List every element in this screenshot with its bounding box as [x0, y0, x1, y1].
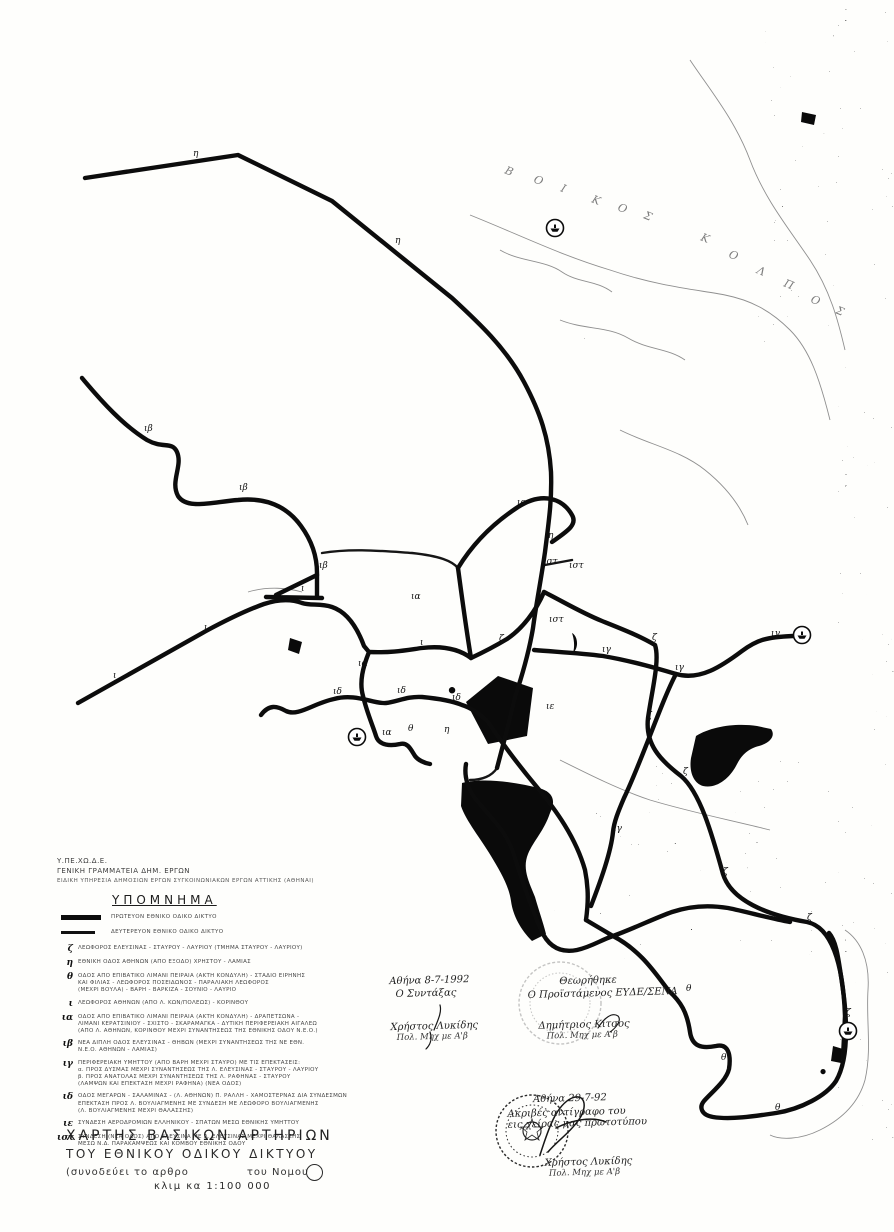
route-letter-label: η: [193, 149, 199, 159]
legend-entry-key: θ: [57, 972, 78, 995]
route-letter-label: ζ: [652, 633, 658, 643]
ship-port-icon: [794, 627, 811, 644]
compile-date: Αθήνα 8-7-1992: [389, 974, 477, 987]
route-letter-label: ιδ: [397, 686, 406, 696]
route-letter-label: ι: [301, 584, 305, 594]
route-letter-label: ια: [517, 498, 527, 508]
map-title-line2: ΤΟΥ ΕΘΝΙΚΟΥ ΟΔΙΚΟΥ ΔΙΚΤΥΟΥ: [66, 1147, 333, 1161]
route-letter-label: ιβ: [239, 483, 248, 493]
scanned-map-page: { "agency": { "line1": "Υ.ΠΕ.ΧΩ.Δ.Ε.", "…: [0, 0, 894, 1232]
coastline-path: [248, 588, 302, 592]
ship-funnel: [554, 225, 556, 229]
legend-entry: ιγΠΕΡΙΦΕΡΕΙΑΚΗ ΥΜΗΤΤΟΥ (ΑΠΟ ΒΑΡΗ ΜΕΧΡΙ Σ…: [57, 1059, 367, 1089]
legend-entry: ζΛΕΩΦΟΡΟΣ ΕΛΕΥΣΙΝΑΣ - ΣΤΑΥΡΟΥ - ΛΑΥΡΙΟΥ …: [57, 944, 367, 954]
legend-entry-text: ΕΘΝΙΚΗ ΟΔΟΣ ΑΘΗΝΩΝ (ΑΠΟ ΕΞΟΔΟ) ΧΡΗΣΤΟΥ -…: [78, 958, 251, 968]
agency-header: Υ.ΠΕ.ΧΩ.Δ.Ε. ΓΕΝΙΚΗ ΓΡΑΜΜΑΤΕΙΑ ΔΗΜ. ΕΡΓΩ…: [57, 856, 314, 886]
ship-funnel: [356, 734, 358, 738]
secondary-road-path: [322, 550, 458, 568]
compiler-title: Πολ. Μηχ με Α'β: [397, 1031, 479, 1043]
legend-entry-key: ιγ: [57, 1059, 78, 1089]
ship-port-icon: [840, 1023, 857, 1040]
legend-entry-text: ΟΔΟΣ ΑΠΟ ΕΠΙΒΑΤΙΚΟ ΛΙΜΑΝΙ ΠΕΙΡΑΙΑ (ΑΚΤΗ …: [78, 1013, 318, 1036]
route-letter-label: θ: [775, 1103, 781, 1113]
legend-entry-key: ιδ: [57, 1092, 78, 1115]
route-letter-label: θ: [686, 984, 692, 994]
route-letter-label: ιγ: [675, 663, 685, 673]
legend-title: ΥΠΟΜΝΗΜΑ: [112, 893, 367, 907]
legend-primary-label: ΠΡΩΤΕΥΟΝ ΕΘΝΙΚΟ ΟΔΙΚΟ ΔΙΚΤΥΟ: [111, 914, 217, 920]
legend-entry-text: ΛΕΩΦΟΡΟΣ ΕΛΕΥΣΙΝΑΣ - ΣΤΑΥΡΟΥ - ΛΑΥΡΙΟΥ (…: [78, 944, 303, 954]
primary-road-path: [266, 575, 322, 598]
approved-label: Θεωρήθηκε: [559, 973, 677, 987]
route-letter-label: ιστ: [569, 561, 585, 571]
law-note-right: του Νομου: [247, 1167, 309, 1178]
legend-entry: ιδΟΔΟΣ ΜΕΓΑΡΩΝ - ΣΑΛΑΜΙΝΑΣ - (Λ. ΑΘΗΝΩΝ)…: [57, 1092, 367, 1115]
route-letter-label: ιγ: [771, 629, 781, 639]
legend-entry-text: ΟΔΟΣ ΜΕΓΑΡΩΝ - ΣΑΛΑΜΙΝΑΣ - (Λ. ΑΘΗΝΩΝ) Π…: [78, 1092, 347, 1115]
legend-entry-key: ιβ: [57, 1039, 78, 1054]
route-letter-label: ια: [358, 659, 368, 669]
route-letter-label: ι: [113, 671, 117, 681]
sea-label-letter: Β: [502, 163, 517, 179]
route-letter-label: θ: [721, 1053, 727, 1063]
certified-copy-block: Αθήνα 29-7-92 Ακριβές αντίγραφο του εις …: [507, 1091, 648, 1180]
compiler-role: Ο Συντάξας: [395, 987, 477, 1000]
map-scale: κλιμ κα 1:100 000: [154, 1181, 333, 1192]
route-letter-label: η: [395, 236, 401, 246]
route-letter-label: ι: [204, 623, 208, 633]
urban-area-blob: [288, 638, 302, 654]
secondary-road-line-symbol: [61, 931, 95, 934]
route-letter-label: ι: [420, 638, 424, 648]
legend-entry: ιαΟΔΟΣ ΑΠΟ ΕΠΙΒΑΤΙΚΟ ΛΙΜΑΝΙ ΠΕΙΡΑΙΑ (ΑΚΤ…: [57, 1013, 367, 1036]
route-letter-label: η: [548, 531, 554, 541]
agency-line1: Υ.ΠΕ.ΧΩ.Δ.Ε.: [57, 856, 314, 866]
legend-entries: ζΛΕΩΦΟΡΟΣ ΕΛΕΥΣΙΝΑΣ - ΣΤΑΥΡΟΥ - ΛΑΥΡΙΟΥ …: [57, 944, 367, 1148]
law-note-left: (συνοδεύει το αρθρο: [66, 1167, 189, 1178]
copy-note2: εις χείρας μας πρωτοτύπου: [508, 1116, 648, 1131]
legend-entry-text: ΝΕΑ ΔΙΠΛΗ ΟΔΟΣ ΕΛΕΥΣΙΝΑΣ - ΘΗΒΩΝ (ΜΕΧΡΙ …: [78, 1039, 304, 1054]
ship-funnel: [847, 1028, 849, 1032]
primary-road-path: [82, 378, 317, 597]
legend-entry: ιΛΕΩΦΟΡΟΣ ΑΘΗΝΩΝ (ΑΠΟ Λ. ΚΩΝ/ΠΟΛΕΩΣ) - Κ…: [57, 999, 367, 1009]
route-letter-label: ιβ: [144, 424, 153, 434]
legend-entry-text: ΟΔΟΣ ΑΠΟ ΕΠΙΒΑΤΙΚΟ ΛΙΜΑΝΙ ΠΕΙΡΑΙΑ (ΑΚΤΗ …: [78, 972, 305, 995]
map-legend: ΥΠΟΜΝΗΜΑ ΠΡΩΤΕΥΟΝ ΕΘΝΙΚΟ ΟΔΙΚΟ ΔΙΚΤΥΟ ΔΕ…: [57, 893, 367, 1152]
ship-funnel: [801, 632, 803, 636]
route-letter-label: ιγ: [602, 645, 612, 655]
legend-entry: ιβΝΕΑ ΔΙΠΛΗ ΟΔΟΣ ΕΛΕΥΣΙΝΑΣ - ΘΗΒΩΝ (ΜΕΧΡ…: [57, 1039, 367, 1054]
route-letter-label: θ: [408, 724, 414, 734]
legend-secondary-row: ΔΕΥΤΕΡΕΥΟΝ ΕΘΝΙΚΟ ΟΔΙΚΟ ΔΙΚΤΥΟ: [61, 929, 367, 935]
legend-entry-key: ια: [57, 1013, 78, 1036]
primary-road-line-symbol: [61, 915, 101, 920]
route-letter-label: ιστ: [549, 615, 565, 625]
ship-port-icon: [349, 729, 366, 746]
route-letter-label: ιστ: [543, 557, 559, 567]
coastline-path: [620, 430, 748, 525]
route-letter-label: ιδ: [333, 687, 342, 697]
approver-role: Ο Προϊστάμενος ΕΥΔΕ/ΣΕΝΑ: [528, 986, 678, 1001]
legend-entry: θΟΔΟΣ ΑΠΟ ΕΠΙΒΑΤΙΚΟ ΛΙΜΑΝΙ ΠΕΙΡΑΙΑ (ΑΚΤΗ…: [57, 972, 367, 995]
legend-entry-key: η: [57, 958, 78, 968]
urban-area-blob: [572, 633, 577, 653]
route-letter-label: ιδ: [452, 693, 461, 703]
agency-line2: ΓΕΝΙΚΗ ΓΡΑΜΜΑΤΕΙΑ ΔΗΜ. ΕΡΓΩΝ: [57, 866, 314, 876]
scale-stamp-circle: [306, 1164, 323, 1181]
legend-entry-key: ι: [57, 999, 78, 1009]
agency-line3: ΕΙΔΙΚΗ ΥΠΗΡΕΣΙΑ ΔΗΜΟΣΙΩΝ ΕΡΓΩΝ ΣΥΓΚΟΙΝΩΝ…: [57, 876, 314, 886]
sea-label-letter: Ο: [532, 173, 547, 189]
route-letter-label: η: [444, 725, 450, 735]
legend-entry-text: ΠΕΡΙΦΕΡΕΙΑΚΗ ΥΜΗΤΤΟΥ (ΑΠΟ ΒΑΡΗ ΜΕΧΡΙ ΣΤΑ…: [78, 1059, 318, 1089]
copy-date: Αθήνα 29-7-92: [533, 1091, 647, 1105]
route-letter-label: ια: [411, 592, 421, 602]
legend-secondary-label: ΔΕΥΤΕΡΕΥΟΝ ΕΘΝΙΚΟ ΟΔΙΚΟ ΔΙΚΤΥΟ: [111, 929, 223, 935]
route-letter-label: ια: [382, 728, 392, 738]
legend-primary-row: ΠΡΩΤΕΥΟΝ ΕΘΝΙΚΟ ΟΔΙΚΟ ΔΙΚΤΥΟ: [61, 914, 367, 920]
legend-entry-key: ζ: [57, 944, 78, 954]
route-letter-label: ιγ: [613, 824, 623, 834]
map-title-law-note: (συνοδεύει το αρθροτου Νομου: [66, 1167, 333, 1178]
route-letter-label: ιβ: [319, 561, 328, 571]
ship-port-icon: [547, 220, 564, 237]
route-letter-label: ιε: [546, 702, 555, 712]
urban-area-blob: [820, 1069, 825, 1074]
approval-signature-block: Θεωρήθηκε Ο Προϊστάμενος ΕΥΔΕ/ΣΕΝΑ Δημήτ…: [527, 973, 679, 1042]
compiler-signature-block: Αθήνα 8-7-1992 Ο Συντάξας Χρήστος Λυκίδη…: [389, 974, 478, 1043]
map-title-line1: ΧΑΡΤΗΣ ΒΑΣΙΚΩΝ ΑΡΤΗΡΙΩΝ: [66, 1128, 333, 1144]
map-title-block: ΧΑΡΤΗΣ ΒΑΣΙΚΩΝ ΑΡΤΗΡΙΩΝ ΤΟΥ ΕΘΝΙΚΟΥ ΟΔΙΚ…: [66, 1128, 333, 1192]
route-letter-label: ζ: [647, 711, 653, 721]
primary-road-path: [78, 600, 369, 703]
legend-entry-text: ΛΕΩΦΟΡΟΣ ΑΘΗΝΩΝ (ΑΠΟ Λ. ΚΩΝ/ΠΟΛΕΩΣ) - ΚΟ…: [78, 999, 248, 1009]
legend-entry: ηΕΘΝΙΚΗ ΟΔΟΣ ΑΘΗΝΩΝ (ΑΠΟ ΕΞΟΔΟ) ΧΡΗΣΤΟΥ …: [57, 958, 367, 968]
